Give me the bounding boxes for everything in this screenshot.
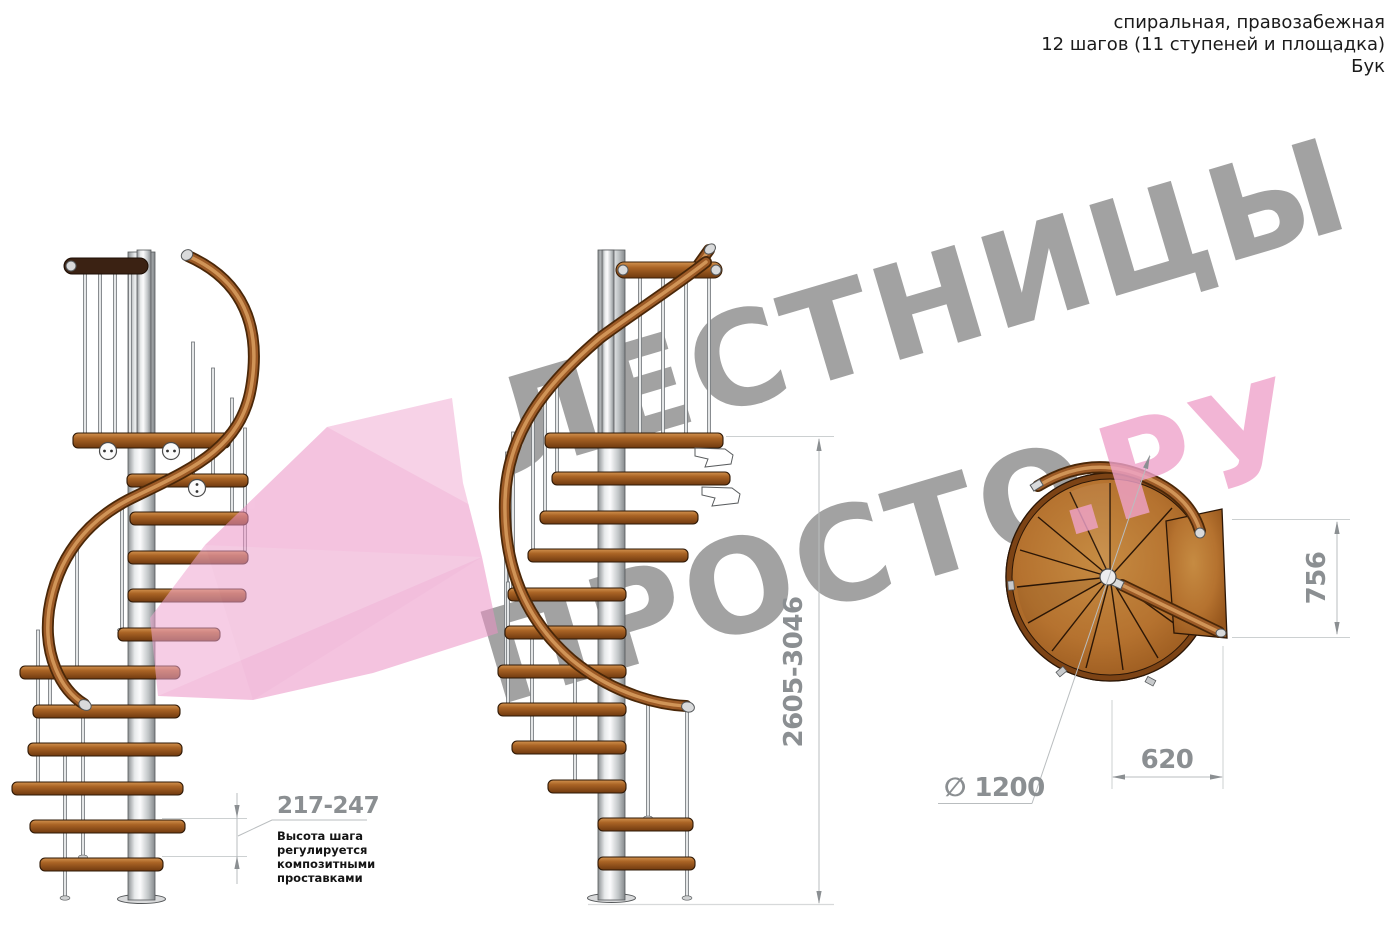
- drawing-page: ЛЕСТНИЦЫ ПРОСТО: [0, 0, 1400, 950]
- svg-text:композитными: композитными: [277, 857, 375, 871]
- watermark-text-front: .РУ: [1029, 349, 1318, 568]
- landing-balusters: [84, 274, 132, 434]
- total-height-label: 2605-3046: [779, 596, 809, 747]
- step-height-label: 217-247: [277, 793, 379, 819]
- rail-end-cap-left: [618, 265, 628, 275]
- watermark-word-ru: .РУ: [1029, 349, 1318, 568]
- title-block: спиральная, правозабежная 12 шагов (11 с…: [1041, 12, 1385, 78]
- stair-steps-line: 12 шагов (11 ступеней и площадка): [1041, 34, 1385, 56]
- step-height-note: Высота шага регулируется композитными пр…: [277, 829, 375, 885]
- diameter-label: ∅ 1200: [944, 773, 1045, 803]
- landing-depth-label: 756: [1302, 552, 1332, 605]
- rail-end-cap: [66, 261, 76, 271]
- stair-material-line: Бук: [1041, 56, 1385, 78]
- drawing-canvas: ЛЕСТНИЦЫ ПРОСТО: [0, 0, 1400, 950]
- plan-center-pole: [1100, 569, 1116, 585]
- dimension-step-height: 217-247 Высота шага регулируется компози…: [162, 793, 379, 885]
- landing-post: [137, 250, 151, 435]
- svg-text:Высота шага: Высота шага: [277, 829, 363, 843]
- dimension-landing-depth: 756: [1232, 520, 1350, 638]
- stair-type-line: спиральная, правозабежная: [1041, 12, 1385, 34]
- svg-text:регулируется: регулируется: [277, 843, 367, 857]
- rail-end-cap-right: [711, 265, 721, 275]
- svg-text:проставками: проставками: [277, 871, 363, 885]
- landing-width-label: 620: [1141, 745, 1194, 775]
- landing-top-rail: [64, 258, 148, 274]
